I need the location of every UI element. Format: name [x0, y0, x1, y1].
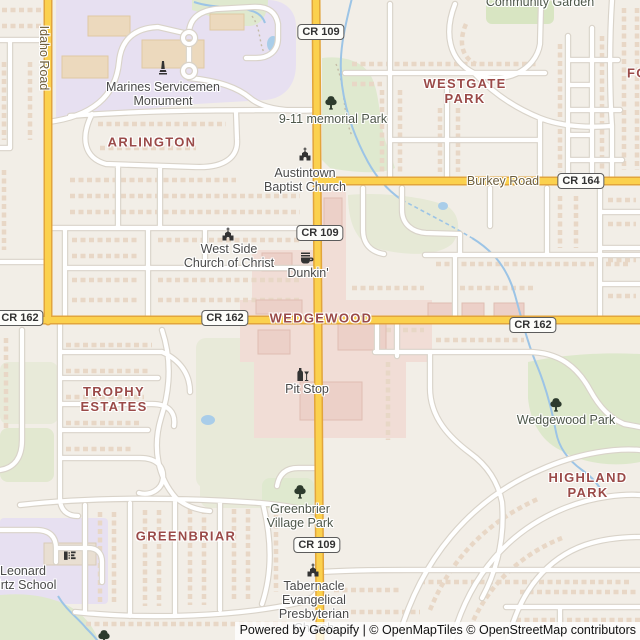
poi-label-dunkin: Dunkin' — [287, 266, 328, 280]
tree-icon — [98, 630, 111, 640]
attribution-separator: | © — [359, 623, 382, 637]
route-shield-cr162-left: CR 162 — [0, 310, 44, 326]
attribution-openmaptiles-link[interactable]: OpenMapTiles — [382, 623, 463, 637]
church-icon — [222, 228, 235, 241]
poi-label-pit-stop: Pit Stop — [285, 382, 329, 396]
map-viewport[interactable]: Idaho Road Marines ServicemenMonument AR… — [0, 0, 640, 640]
park-label-911-memorial: 9-11 memorial Park — [279, 112, 387, 126]
attribution-contributors: contributors — [567, 623, 636, 637]
road-label-burkey: Burkey Road — [467, 174, 539, 188]
bar-icon — [296, 368, 310, 382]
route-shield-cr109-top: CR 109 — [297, 24, 344, 40]
park-label-wedgewood-park: Wedgewood Park — [517, 413, 615, 427]
neighborhood-label-arlington: ARLINGTON — [108, 135, 197, 150]
attribution-bar: Powered by Geoapify | © OpenMapTiles © O… — [235, 622, 640, 640]
road-label-idaho: Idaho Road — [37, 26, 51, 91]
attribution-powered-by: Powered by — [240, 623, 309, 637]
monument-icon — [158, 61, 168, 75]
neighborhood-label-trophy-estates: TROPHYESTATES — [80, 384, 147, 414]
route-shield-cr164: CR 164 — [557, 173, 604, 189]
neighborhood-label-westgate-park: WESTGATEPARK — [423, 76, 506, 106]
neighborhood-label-highland-park: HIGHLANDPARK — [548, 470, 627, 500]
neighborhood-label-greenbriar: GREENBRIAR — [136, 529, 236, 544]
attribution-separator2: © — [463, 623, 479, 637]
poi-label-austintown-baptist: AustintownBaptist Church — [264, 166, 346, 194]
school-icon — [63, 551, 77, 562]
poi-label-west-side-church: West SideChurch of Christ — [184, 242, 274, 270]
attribution-openstreetmap-link[interactable]: OpenStreetMap — [479, 623, 567, 637]
tree-icon — [325, 96, 338, 111]
attribution-geoapify-link[interactable]: Geoapify — [309, 623, 359, 637]
park-label-community-garden: Community Garden — [486, 0, 594, 9]
cafe-icon — [300, 252, 314, 265]
church-icon — [307, 564, 320, 577]
neighborhood-label-wedgewood: WEDGEWOOD — [270, 311, 373, 326]
tree-icon — [294, 485, 307, 500]
tree-icon — [550, 398, 563, 413]
poi-label-marines-monument: Marines ServicemenMonument — [106, 80, 220, 108]
route-shield-cr162-right: CR 162 — [509, 317, 556, 333]
neighborhood-label-edge-fragment: FO — [627, 66, 640, 81]
church-icon — [299, 148, 312, 161]
poi-label-leonard-kirtz-school: LeonardKirtz School — [0, 564, 56, 592]
route-shield-cr109-bottom: CR 109 — [293, 537, 340, 553]
route-shield-cr162-mid: CR 162 — [201, 310, 248, 326]
route-shield-cr109-mid: CR 109 — [296, 225, 343, 241]
park-label-greenbrier-village: GreenbrierVillage Park — [267, 502, 333, 530]
